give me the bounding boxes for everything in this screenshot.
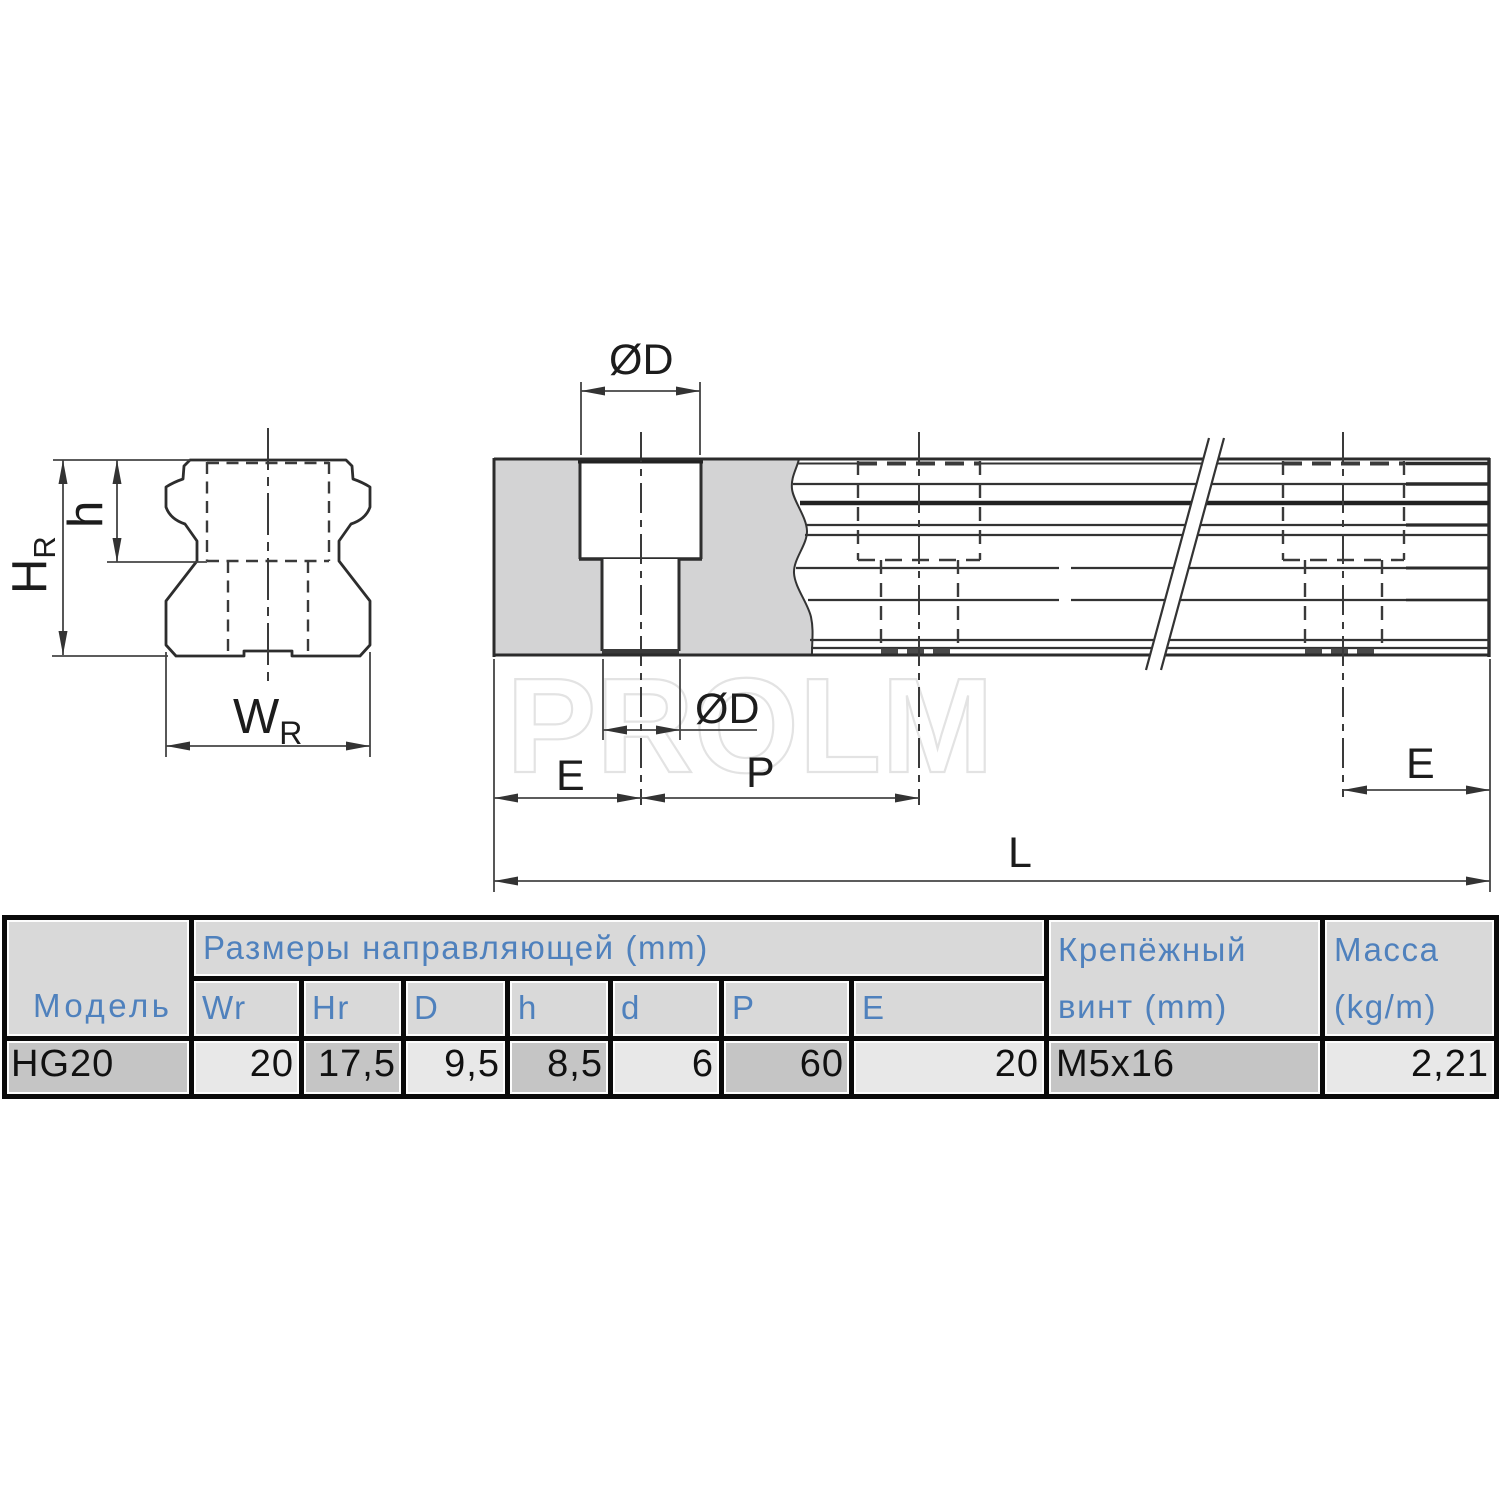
svg-text:WR: WR	[233, 690, 302, 751]
svg-text:P: P	[746, 749, 775, 797]
svg-text:h: h	[59, 501, 113, 528]
svg-text:L: L	[1008, 829, 1032, 877]
svg-text:ØD: ØD	[695, 685, 760, 733]
svg-text:HR: HR	[3, 536, 62, 594]
svg-text:E: E	[1406, 740, 1435, 788]
svg-text:ØD: ØD	[609, 336, 674, 384]
svg-text:E: E	[556, 752, 585, 800]
